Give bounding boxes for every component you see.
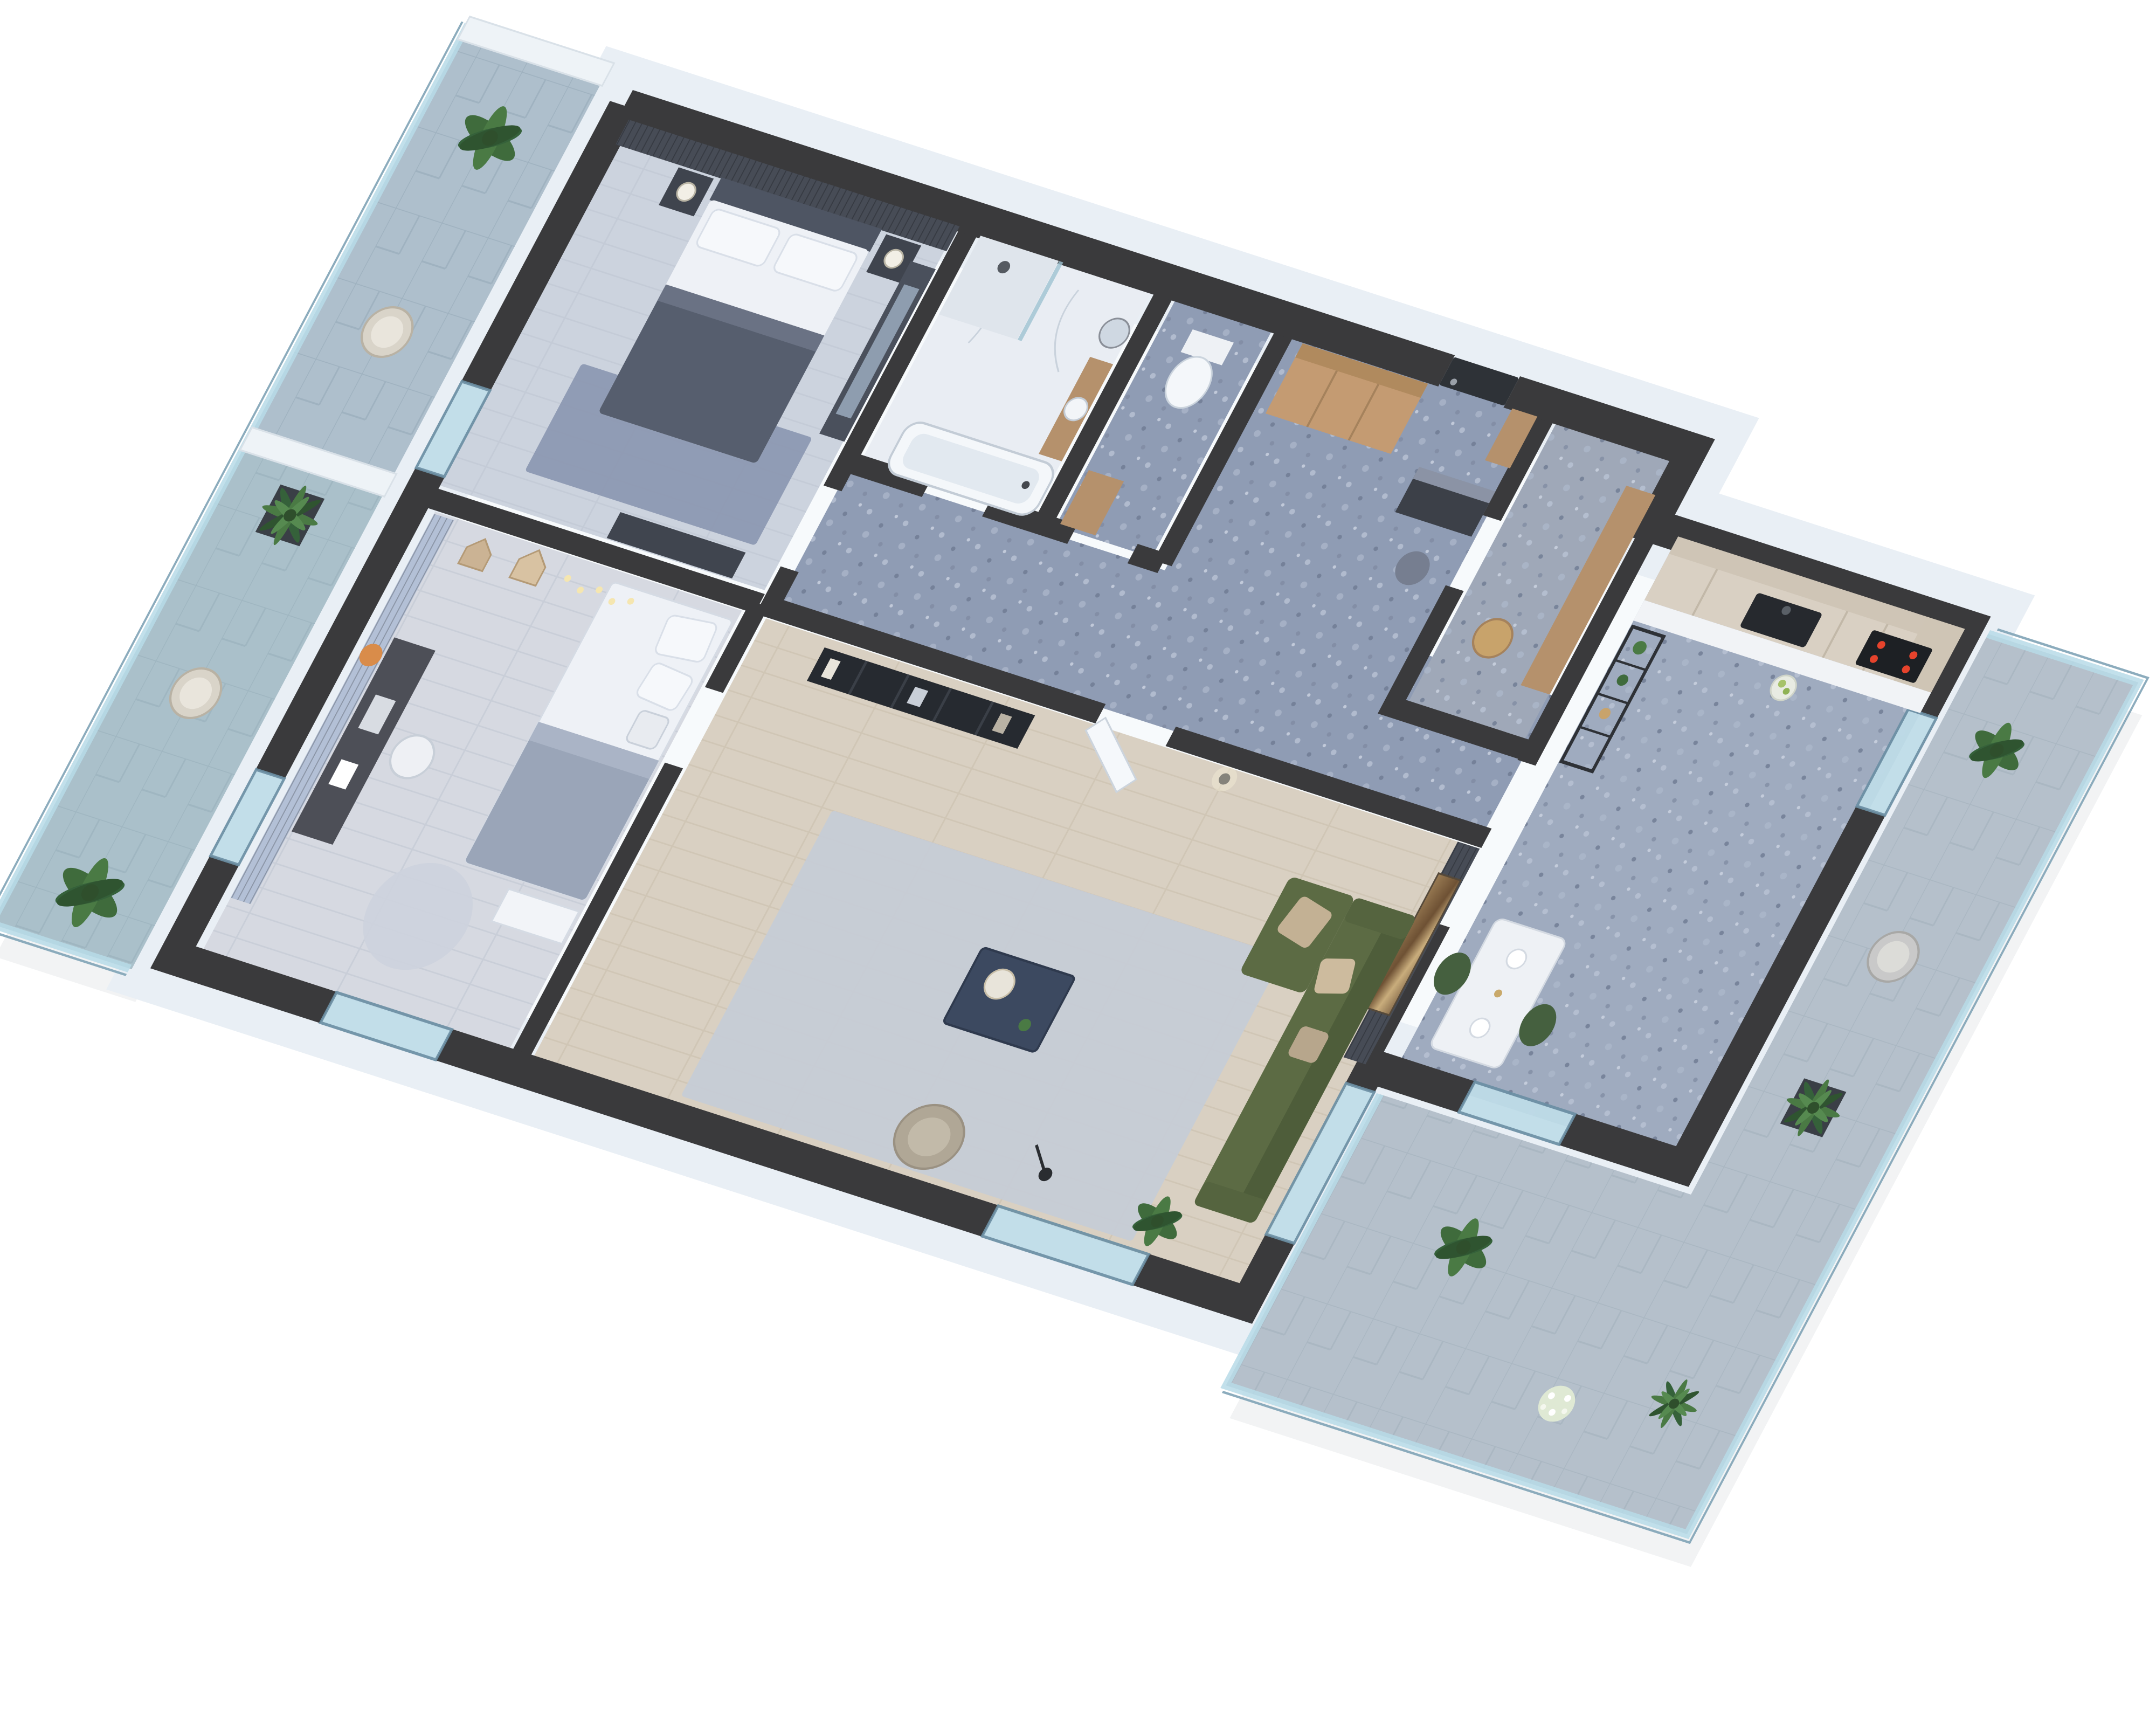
floor-plan-render: Left balcony Right balcony — [0, 0, 2156, 1725]
